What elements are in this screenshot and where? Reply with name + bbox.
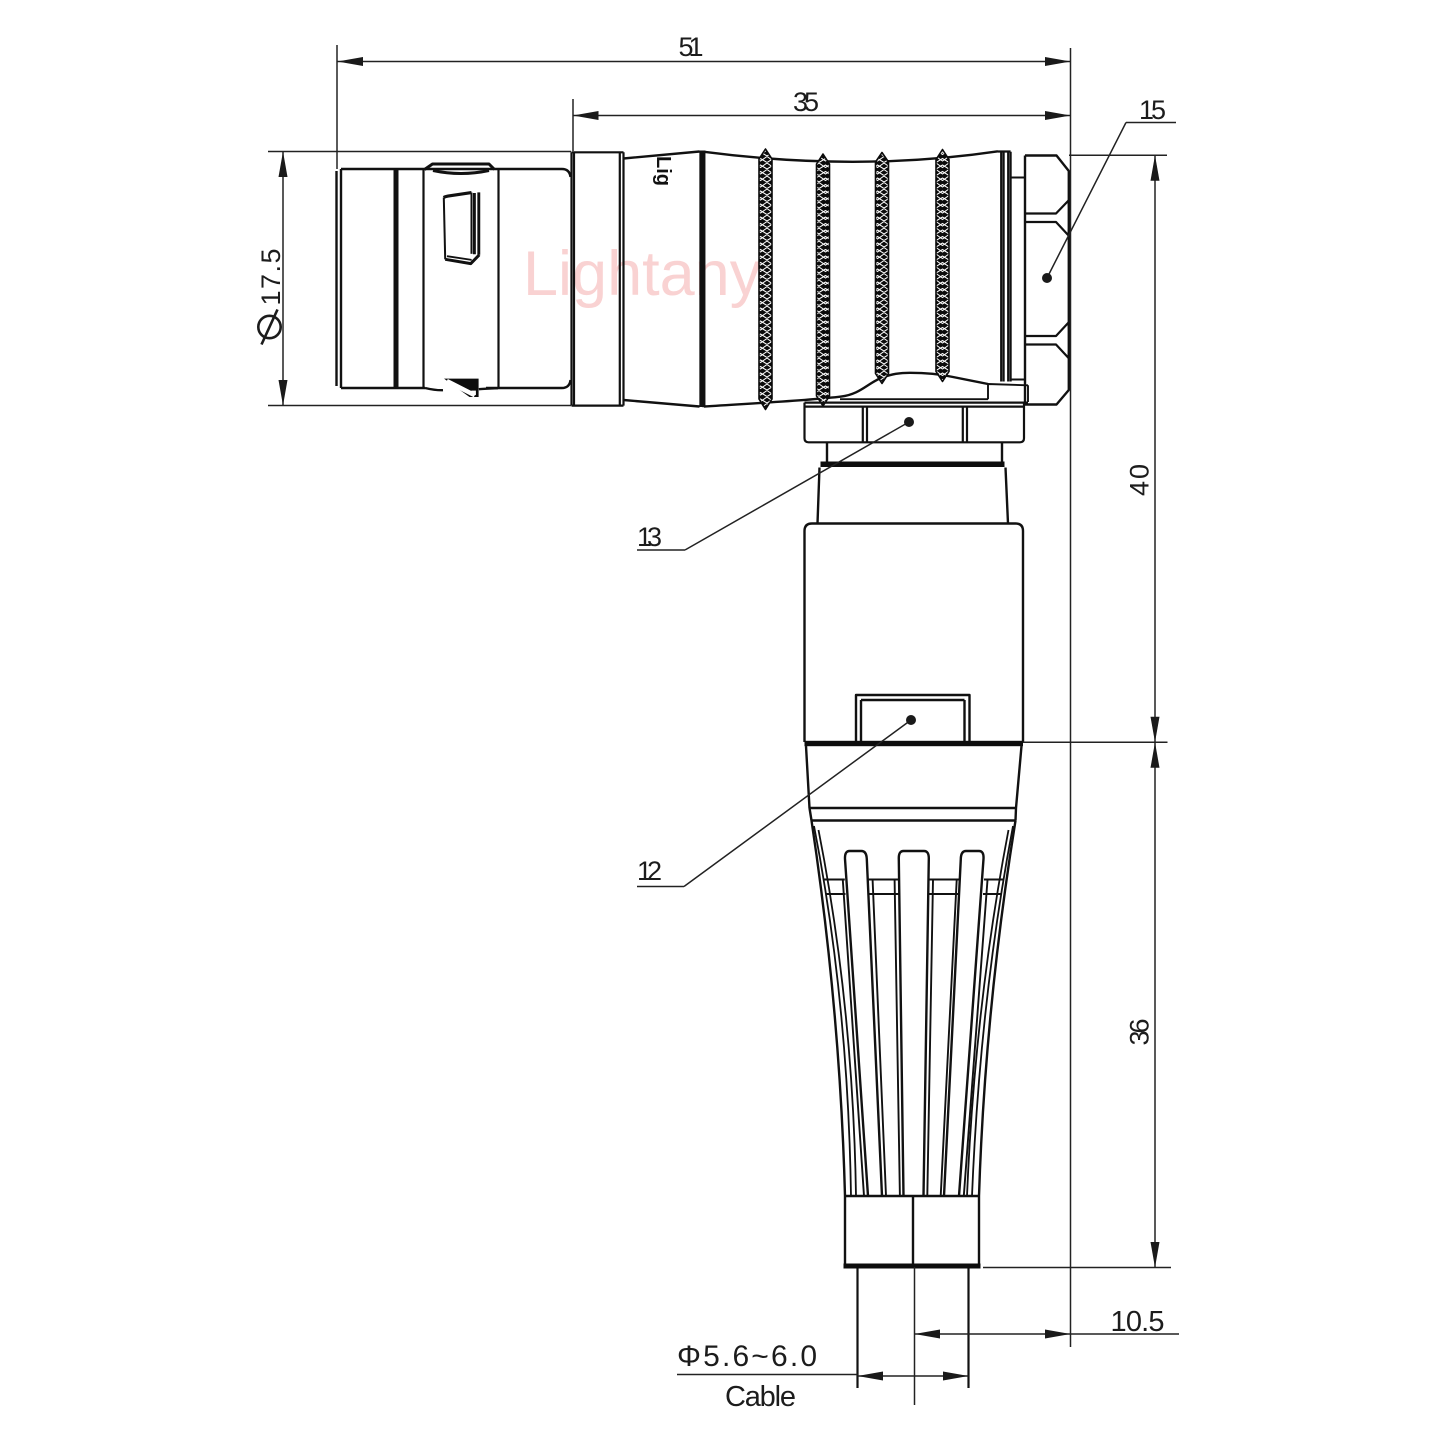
svg-text:Cable: Cable bbox=[725, 1381, 796, 1413]
svg-text:35: 35 bbox=[793, 87, 819, 117]
svg-text:12: 12 bbox=[637, 856, 662, 886]
svg-text:10.5: 10.5 bbox=[1111, 1306, 1165, 1338]
svg-text:13: 13 bbox=[637, 522, 662, 552]
svg-text:36: 36 bbox=[1125, 1019, 1155, 1046]
svg-text:17.5: 17.5 bbox=[256, 249, 286, 306]
svg-text:15: 15 bbox=[1139, 95, 1166, 125]
svg-text:40: 40 bbox=[1125, 464, 1155, 496]
svg-text:Lig: Lig bbox=[652, 156, 674, 186]
svg-text:Lightany: Lightany bbox=[523, 239, 762, 309]
svg-text:51: 51 bbox=[679, 32, 704, 62]
svg-text:Φ5.6~6.0: Φ5.6~6.0 bbox=[677, 1340, 817, 1373]
